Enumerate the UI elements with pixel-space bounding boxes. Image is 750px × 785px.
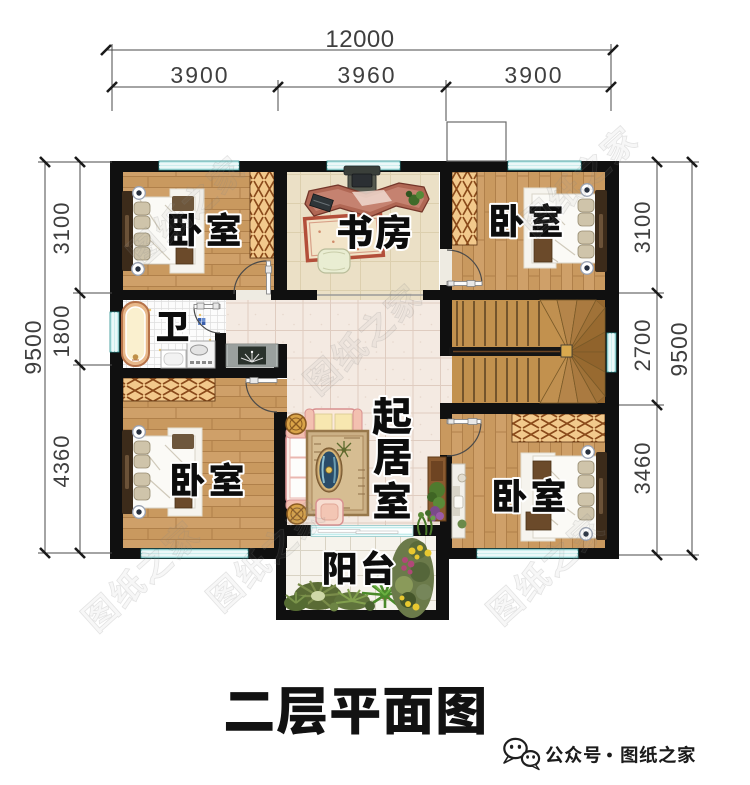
- svg-text:1800: 1800: [49, 305, 74, 358]
- svg-text:2700: 2700: [630, 319, 655, 372]
- svg-text:3100: 3100: [630, 201, 655, 254]
- svg-text:3900: 3900: [170, 62, 229, 88]
- svg-text:9500: 9500: [20, 319, 46, 374]
- svg-text:9500: 9500: [666, 321, 692, 376]
- svg-text:12000: 12000: [325, 26, 394, 53]
- svg-text:3100: 3100: [49, 202, 74, 255]
- svg-text:4360: 4360: [49, 435, 74, 488]
- svg-text:3900: 3900: [504, 62, 563, 88]
- svg-text:3460: 3460: [630, 442, 655, 495]
- svg-text:3960: 3960: [337, 62, 396, 88]
